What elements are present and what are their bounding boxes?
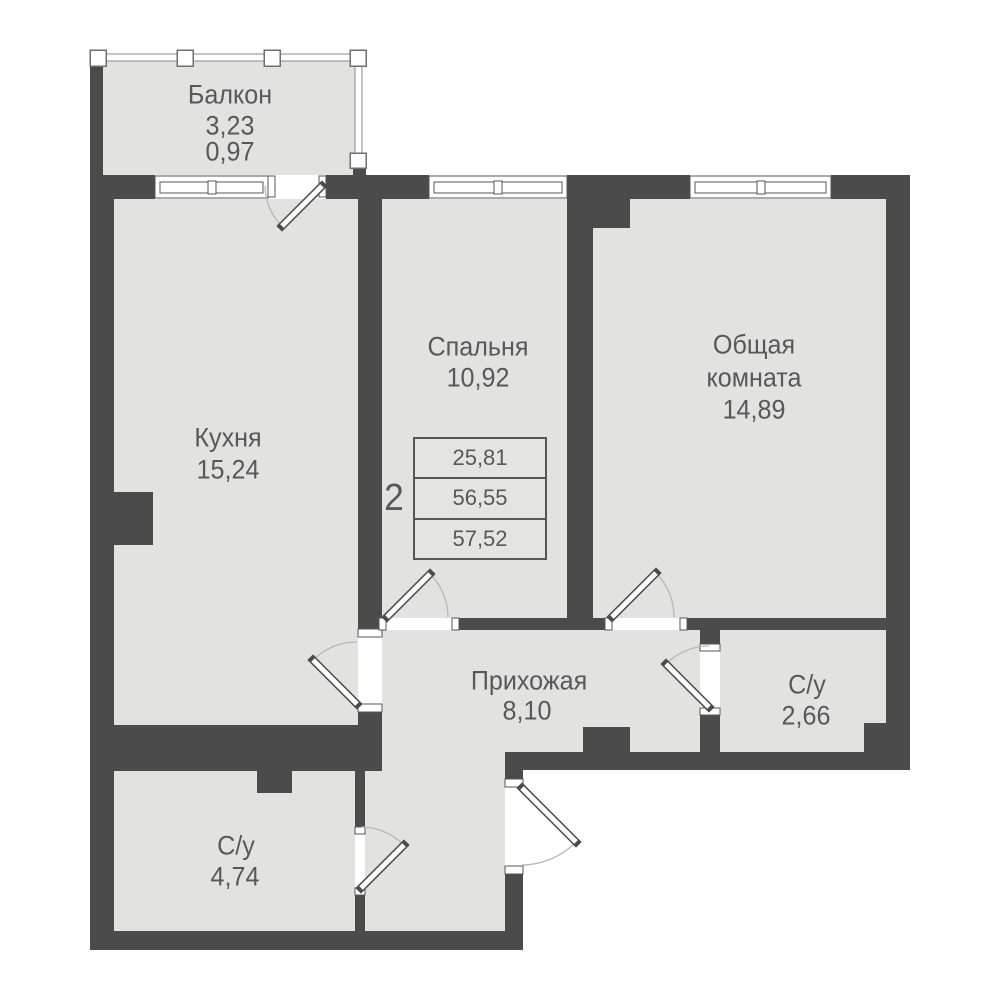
door-jamb	[358, 704, 382, 712]
wall-segment	[90, 175, 114, 950]
entrance-door	[522, 788, 576, 842]
door-jamb	[358, 629, 382, 637]
wall-segment	[505, 752, 910, 770]
wall-segment	[452, 618, 612, 630]
legend-total-area: 57,52	[415, 518, 545, 558]
wall-segment	[680, 618, 886, 630]
door-jamb	[505, 866, 523, 874]
wall-segment	[90, 55, 103, 177]
railing-top	[98, 54, 362, 61]
wall-segment	[886, 175, 910, 770]
railing-post	[90, 50, 106, 66]
kitchen-area: 15,24	[197, 457, 260, 484]
door-jamb	[452, 618, 459, 630]
wall-segment	[257, 771, 292, 793]
balcony-label: Балкон	[188, 82, 272, 109]
corridor-floor	[365, 752, 505, 932]
railing-post	[264, 50, 280, 66]
door-opening	[612, 618, 680, 630]
door-arc	[522, 842, 576, 865]
wall-segment	[567, 199, 593, 630]
railing-post	[350, 50, 366, 66]
wall-segment	[583, 727, 630, 752]
area-legend-table: 25,81 56,55 57,52	[413, 437, 547, 560]
floor-plan: Балкон 3,23 0,97 Кухня 15,24 Спальня 10,…	[0, 0, 1000, 1000]
wall-segment	[90, 725, 365, 771]
hallway-label: Прихожая	[471, 668, 587, 695]
balcony-area: 3,23	[206, 113, 255, 140]
door-jamb	[680, 618, 687, 630]
windows	[155, 176, 831, 198]
bathroom-large-label: С/у	[217, 833, 255, 860]
living-room-window	[690, 176, 831, 198]
balcony-area-coeff: 0,97	[206, 139, 255, 166]
door-jamb	[700, 644, 720, 651]
kitchen-window	[155, 176, 268, 198]
wall-segment	[593, 199, 630, 228]
hallway-area: 8,10	[503, 698, 552, 725]
bedroom-window	[429, 176, 567, 198]
bedroom-label: Спальня	[428, 334, 529, 361]
legend-living-area: 25,81	[415, 439, 545, 477]
wall-segment	[90, 175, 155, 199]
bathroom-large-area: 4,74	[211, 864, 260, 891]
door-opening	[358, 637, 382, 704]
bathroom-small-area: 2,66	[782, 703, 831, 730]
kitchen-label: Кухня	[194, 425, 261, 452]
legend-area: 56,55	[415, 477, 545, 517]
living-room-label: Общая	[713, 332, 795, 359]
railing-right	[355, 57, 362, 160]
room-count: 2	[384, 479, 404, 517]
wall-segment	[355, 771, 365, 834]
wall-segment	[114, 492, 153, 545]
wall-segment	[505, 874, 523, 931]
living-room-label: комната	[707, 365, 802, 392]
bedroom-area: 10,92	[447, 365, 510, 392]
living-room-area: 14,89	[723, 397, 786, 424]
wall-segment	[505, 770, 523, 779]
wall-segment	[864, 723, 886, 752]
railing-post	[177, 50, 193, 66]
wall-segment	[358, 199, 382, 636]
door-jamb	[355, 827, 365, 834]
door-opening	[386, 618, 452, 630]
wall-segment	[567, 175, 690, 199]
bathroom-small-label: С/у	[788, 672, 826, 699]
living-room-floor	[630, 199, 886, 229]
railing-post	[350, 153, 366, 168]
door-jamb	[268, 176, 275, 197]
wall-segment	[326, 175, 429, 199]
wall-segment	[90, 931, 523, 950]
door-opening	[505, 779, 523, 874]
